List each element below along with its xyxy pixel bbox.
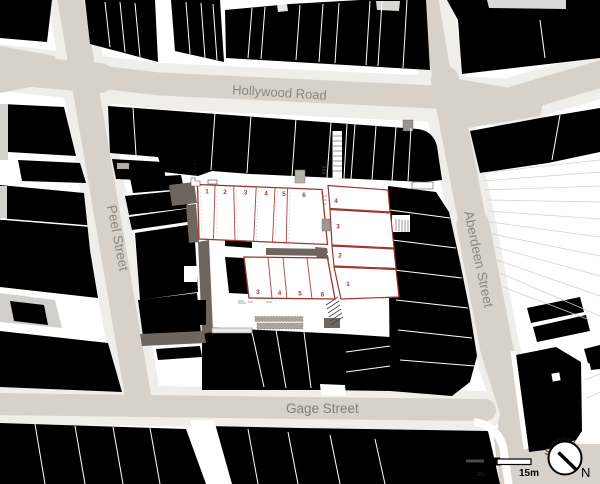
svg-text:2: 2: [338, 253, 342, 260]
svg-text:15m: 15m: [519, 468, 539, 479]
svg-text:3: 3: [244, 190, 248, 197]
svg-text:4: 4: [334, 198, 338, 205]
svg-text:6: 6: [321, 292, 325, 299]
svg-text:Gage Street: Gage Street: [286, 401, 359, 416]
svg-text:5: 5: [298, 291, 302, 298]
svg-text:4: 4: [278, 290, 282, 297]
svg-text:N: N: [581, 465, 590, 480]
svg-text:4: 4: [264, 191, 268, 198]
svg-text:3: 3: [256, 289, 260, 296]
svg-text:3: 3: [336, 224, 340, 231]
svg-text:1: 1: [205, 189, 209, 196]
svg-text:6: 6: [302, 192, 306, 199]
svg-text:1: 1: [346, 281, 350, 288]
svg-text:3½: 3½: [477, 471, 485, 478]
svg-text:5: 5: [282, 191, 286, 198]
svg-text:2: 2: [223, 189, 227, 196]
